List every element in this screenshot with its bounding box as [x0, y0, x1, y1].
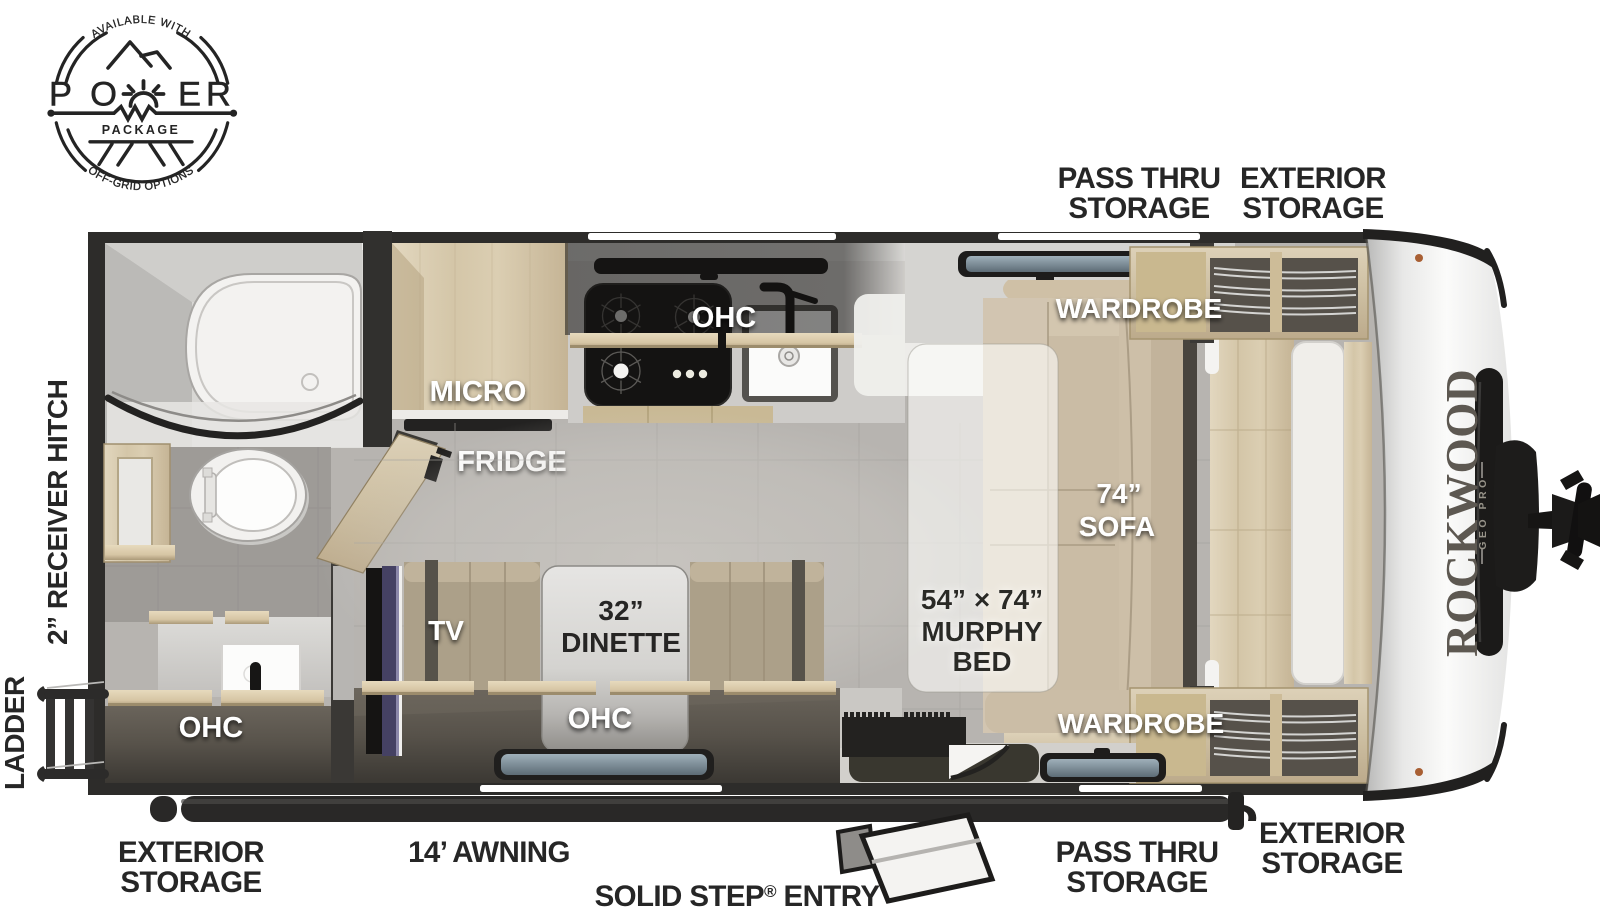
svg-text:GEO PRO: GEO PRO: [1477, 476, 1489, 550]
svg-text:EXTERIOR: EXTERIOR: [118, 836, 264, 869]
svg-text:E: E: [178, 76, 201, 114]
svg-text:2” RECEIVER HITCH: 2” RECEIVER HITCH: [42, 380, 73, 645]
svg-text:MICRO: MICRO: [430, 376, 527, 408]
svg-text:PACKAGE: PACKAGE: [102, 123, 180, 137]
svg-text:OHC: OHC: [692, 302, 757, 334]
svg-text:PASS THRU: PASS THRU: [1058, 162, 1221, 195]
svg-text:54” × 74”: 54” × 74”: [921, 584, 1043, 615]
svg-text:32”: 32”: [598, 595, 643, 626]
svg-text:P: P: [49, 76, 72, 114]
svg-text:STORAGE: STORAGE: [1242, 192, 1383, 225]
svg-text:14’ AWNING: 14’ AWNING: [408, 836, 570, 869]
svg-text:EXTERIOR: EXTERIOR: [1259, 817, 1405, 850]
svg-text:WARDROBE: WARDROBE: [1056, 293, 1222, 324]
svg-text:WARDROBE: WARDROBE: [1058, 708, 1224, 739]
svg-text:O: O: [90, 76, 117, 114]
svg-text:STORAGE: STORAGE: [120, 866, 261, 899]
svg-text:74”: 74”: [1096, 478, 1141, 509]
svg-text:OHC: OHC: [568, 703, 633, 735]
svg-text:SOLID STEP® ENTRY: SOLID STEP® ENTRY: [595, 880, 881, 909]
svg-text:STORAGE: STORAGE: [1066, 866, 1207, 899]
svg-text:SOFA: SOFA: [1079, 511, 1155, 542]
svg-text:R: R: [206, 76, 231, 114]
svg-text:STORAGE: STORAGE: [1068, 192, 1209, 225]
svg-text:DINETTE: DINETTE: [561, 627, 681, 658]
svg-text:OHC: OHC: [179, 712, 244, 744]
svg-text:BED: BED: [952, 646, 1011, 677]
svg-text:PASS THRU: PASS THRU: [1056, 836, 1219, 869]
svg-text:EXTERIOR: EXTERIOR: [1240, 162, 1386, 195]
svg-text:TV: TV: [428, 615, 464, 646]
svg-text:MURPHY: MURPHY: [921, 616, 1043, 647]
svg-text:STORAGE: STORAGE: [1261, 847, 1402, 880]
svg-text:LADDER: LADDER: [0, 676, 30, 790]
